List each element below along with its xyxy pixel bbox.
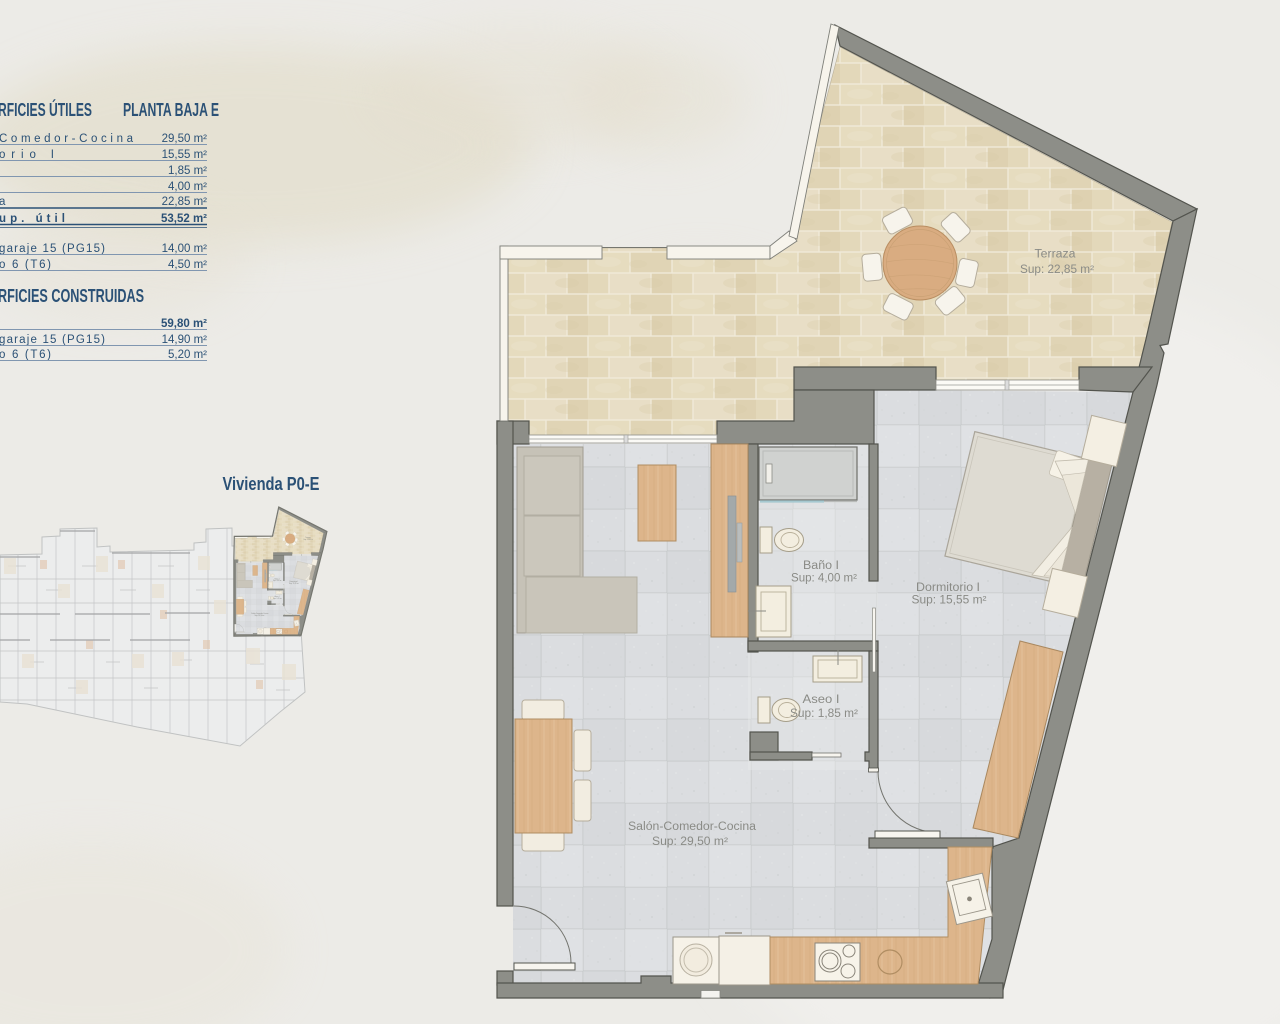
svg-text:Sup: 1,85 m²: Sup: 1,85 m² bbox=[790, 708, 858, 720]
svg-text:15,55 m²: 15,55 m² bbox=[162, 149, 208, 161]
svg-text:4,50 m²: 4,50 m² bbox=[168, 259, 207, 271]
svg-text:garaje 15 (PG15): garaje 15 (PG15) bbox=[0, 243, 105, 255]
svg-text:o 6 (T6): o 6 (T6) bbox=[0, 259, 51, 271]
svg-text:RFICIES ÚTILES: RFICIES ÚTILES bbox=[0, 99, 92, 120]
svg-text:Baño I: Baño I bbox=[803, 560, 839, 572]
svg-text:garaje 15 (PG15): garaje 15 (PG15) bbox=[0, 334, 105, 346]
svg-text:PLANTA BAJA E: PLANTA BAJA E bbox=[123, 100, 219, 120]
svg-text:1,85 m²: 1,85 m² bbox=[168, 165, 207, 177]
svg-text:Sup: 4,00 m²: Sup: 4,00 m² bbox=[791, 573, 857, 585]
svg-text:Sup: 29,50 m²: Sup: 29,50 m² bbox=[652, 836, 728, 848]
svg-text:Dormitorio I: Dormitorio I bbox=[916, 582, 980, 594]
svg-text:14,90 m²: 14,90 m² bbox=[162, 334, 208, 346]
svg-text:53,52 m²: 53,52 m² bbox=[161, 213, 207, 225]
svg-text:59,80 m²: 59,80 m² bbox=[161, 318, 207, 330]
svg-text:Sup: 15,55 m²: Sup: 15,55 m² bbox=[912, 595, 987, 607]
svg-text:a: a bbox=[0, 196, 6, 208]
svg-text:22,85 m²: 22,85 m² bbox=[162, 196, 208, 208]
svg-text:Aseo I: Aseo I bbox=[803, 694, 840, 706]
svg-text:5,20 m²: 5,20 m² bbox=[168, 349, 207, 361]
svg-text:Salón-Comedor-Cocina: Salón-Comedor-Cocina bbox=[628, 821, 757, 833]
svg-text:14,00 m²: 14,00 m² bbox=[162, 243, 208, 255]
svg-text:Terraza: Terraza bbox=[1035, 249, 1077, 261]
svg-text:o 6 (T6): o 6 (T6) bbox=[0, 349, 51, 361]
svg-text:Sup: 22,85 m²: Sup: 22,85 m² bbox=[1020, 264, 1094, 276]
svg-text:Vivienda P0-E: Vivienda P0-E bbox=[223, 474, 320, 494]
svg-text:RFICIES CONSTRUIDAS: RFICIES CONSTRUIDAS bbox=[0, 286, 144, 306]
svg-text:29,50 m²: 29,50 m² bbox=[162, 133, 208, 145]
svg-text:4,00 m²: 4,00 m² bbox=[168, 181, 207, 193]
